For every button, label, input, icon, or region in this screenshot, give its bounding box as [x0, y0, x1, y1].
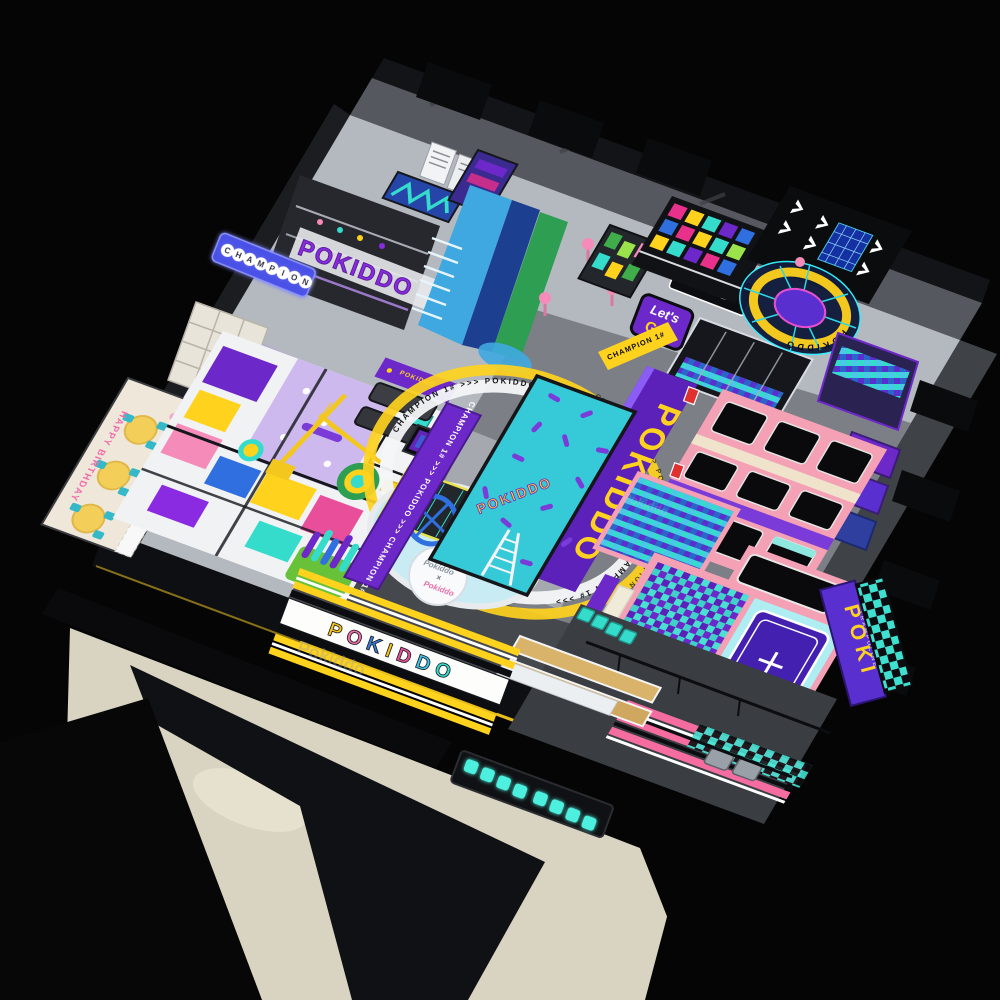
carousel-pole-top	[795, 257, 805, 267]
render-stage: C H A M P I O N POKIDDO SCORES SCORES HA…	[0, 0, 1000, 1000]
park-render: C H A M P I O N POKIDDO SCORES SCORES HA…	[0, 0, 1000, 1000]
